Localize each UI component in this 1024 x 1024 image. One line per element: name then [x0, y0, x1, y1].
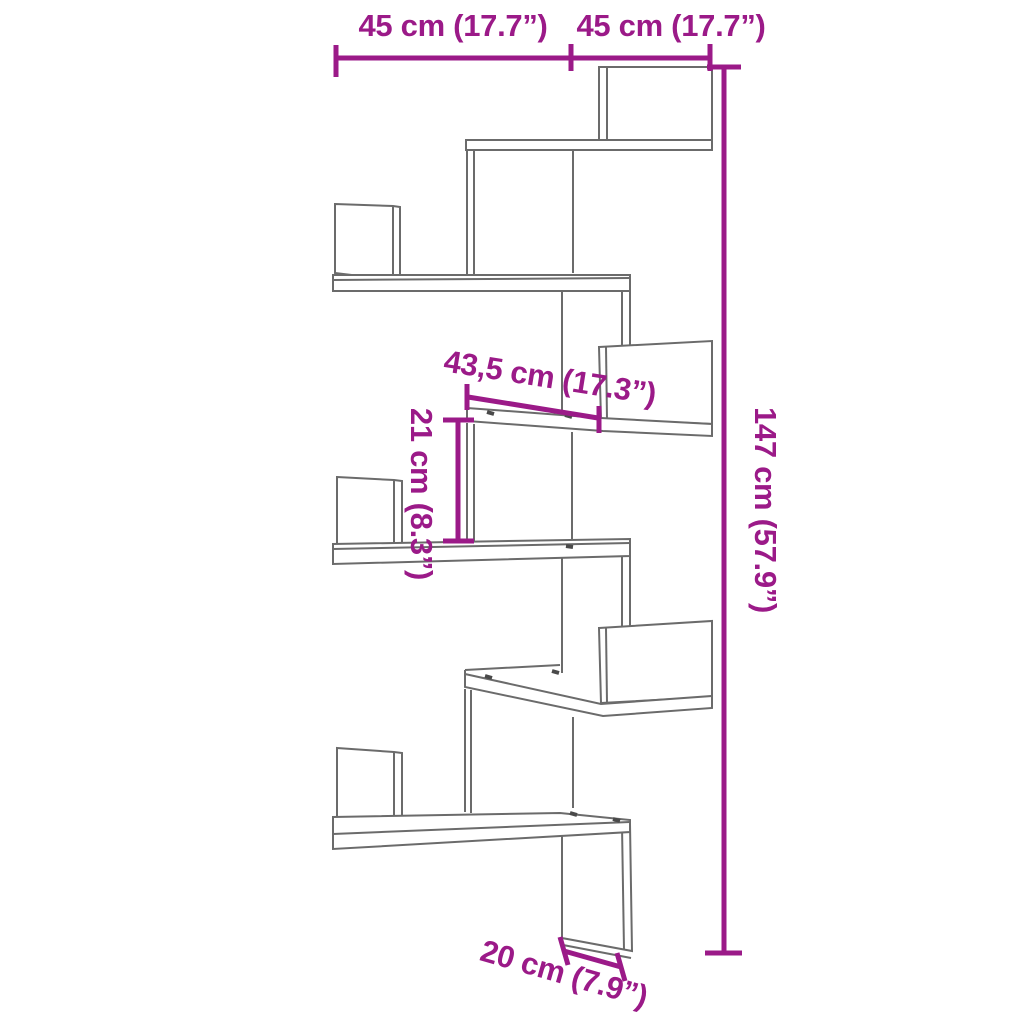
dim-label-top-right-width: 45 cm (17.7”) [566, 6, 776, 46]
dim-line-shelf-spacing [443, 420, 474, 541]
dim-line-total-height [705, 67, 742, 953]
divider-3 [465, 689, 573, 813]
dim-label-total-height: 147 cm (57.9”) [745, 380, 785, 640]
top-shelf [466, 140, 712, 150]
shelf-structure [333, 67, 712, 958]
top-right-panel [599, 67, 712, 140]
right-panel-3-edge [606, 628, 607, 703]
right-shelf-3-back-edge [465, 665, 560, 675]
divider-2 [467, 423, 572, 548]
corner-shelf-line-drawing [0, 0, 1024, 1024]
right-panel-3 [599, 621, 712, 703]
product-dimension-diagram: 45 cm (17.7”) 45 cm (17.7”) 147 cm (57.9… [0, 0, 1024, 1024]
left-panel-1 [335, 204, 400, 281]
left-shelf-2 [333, 539, 630, 564]
dim-label-shelf-spacing: 21 cm (8.3”) [401, 384, 441, 604]
mount-marks-shelf-3 [485, 671, 559, 678]
divider-1 [467, 150, 573, 276]
dim-label-top-left-width: 45 cm (17.7”) [336, 6, 570, 46]
mount-marks-shelf-l2 [566, 546, 573, 547]
